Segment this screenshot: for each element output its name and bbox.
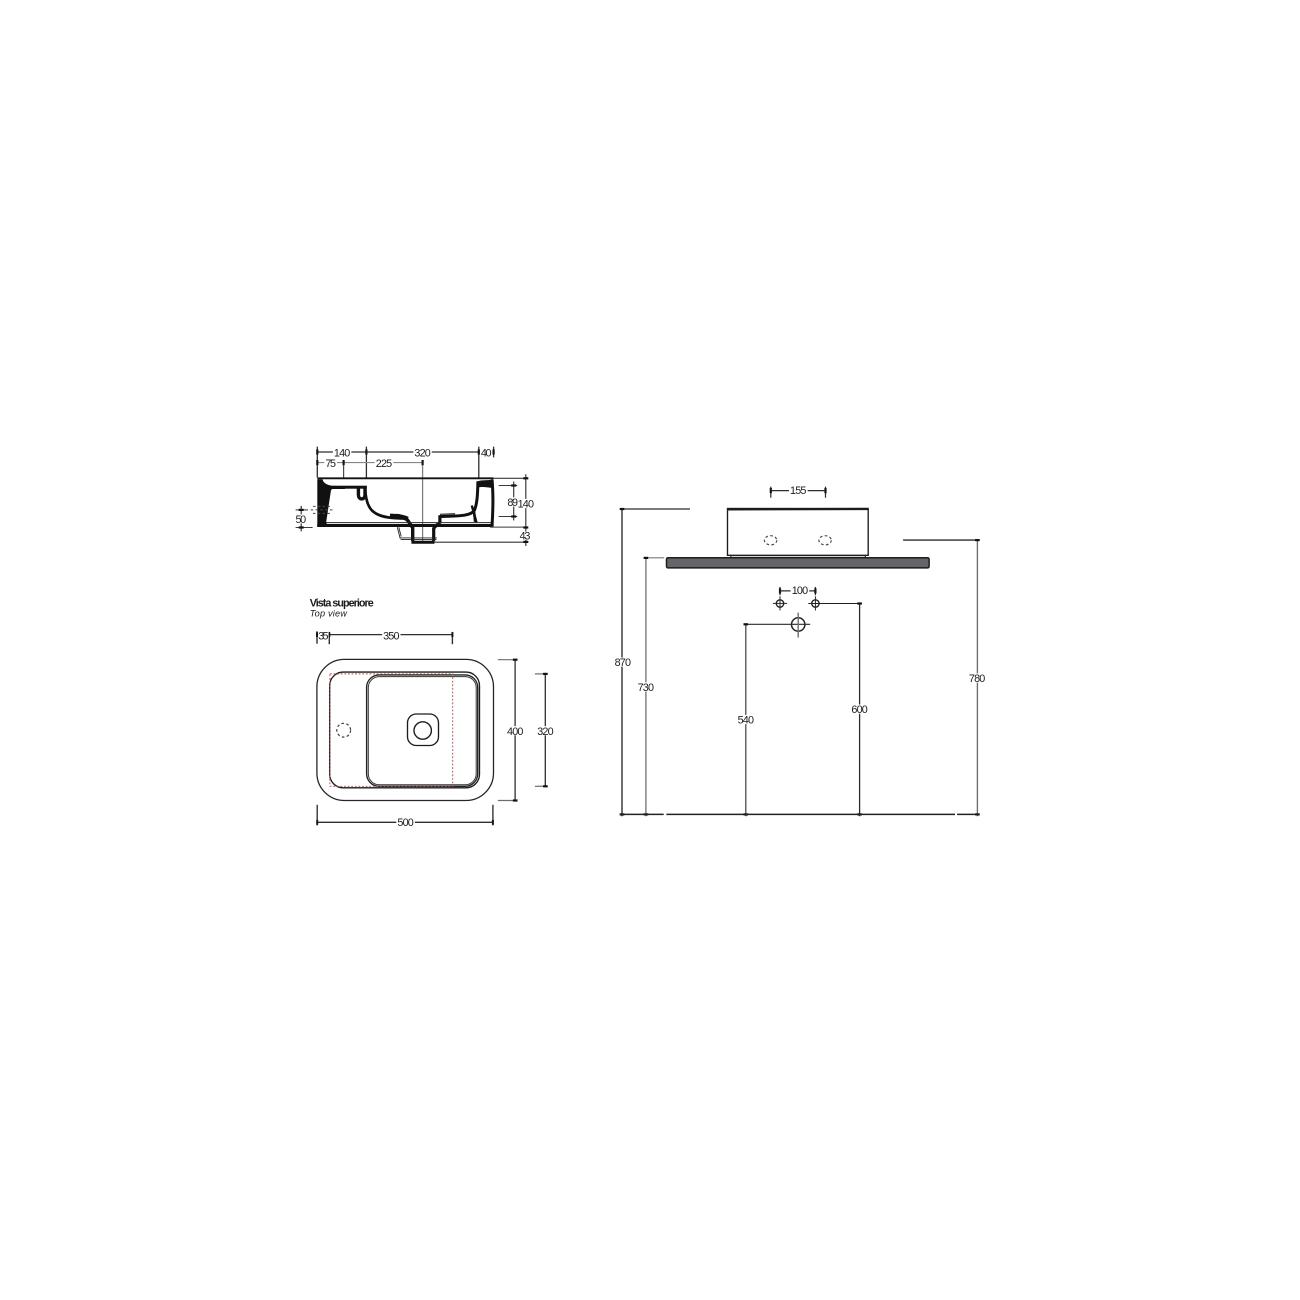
svg-text:320: 320 bbox=[537, 726, 553, 738]
svg-text:350: 350 bbox=[383, 630, 399, 642]
svg-text:870: 870 bbox=[615, 657, 631, 669]
svg-text:75: 75 bbox=[325, 458, 336, 470]
svg-text:780: 780 bbox=[969, 673, 985, 685]
svg-text:400: 400 bbox=[507, 726, 523, 738]
svg-text:50: 50 bbox=[295, 514, 306, 526]
svg-text:100: 100 bbox=[792, 585, 808, 597]
svg-text:40: 40 bbox=[481, 447, 492, 459]
svg-text:500: 500 bbox=[397, 817, 413, 829]
svg-text:155: 155 bbox=[790, 485, 806, 497]
svg-text:89: 89 bbox=[507, 497, 518, 509]
svg-text:320: 320 bbox=[414, 447, 430, 459]
svg-text:730: 730 bbox=[638, 682, 654, 694]
svg-text:140: 140 bbox=[334, 447, 350, 459]
svg-text:540: 540 bbox=[738, 714, 754, 726]
svg-text:600: 600 bbox=[851, 704, 867, 716]
svg-text:Top view: Top view bbox=[310, 608, 349, 618]
svg-text:140: 140 bbox=[518, 499, 534, 511]
svg-text:225: 225 bbox=[376, 458, 392, 470]
svg-text:35: 35 bbox=[318, 630, 328, 642]
svg-text:43: 43 bbox=[520, 530, 531, 542]
